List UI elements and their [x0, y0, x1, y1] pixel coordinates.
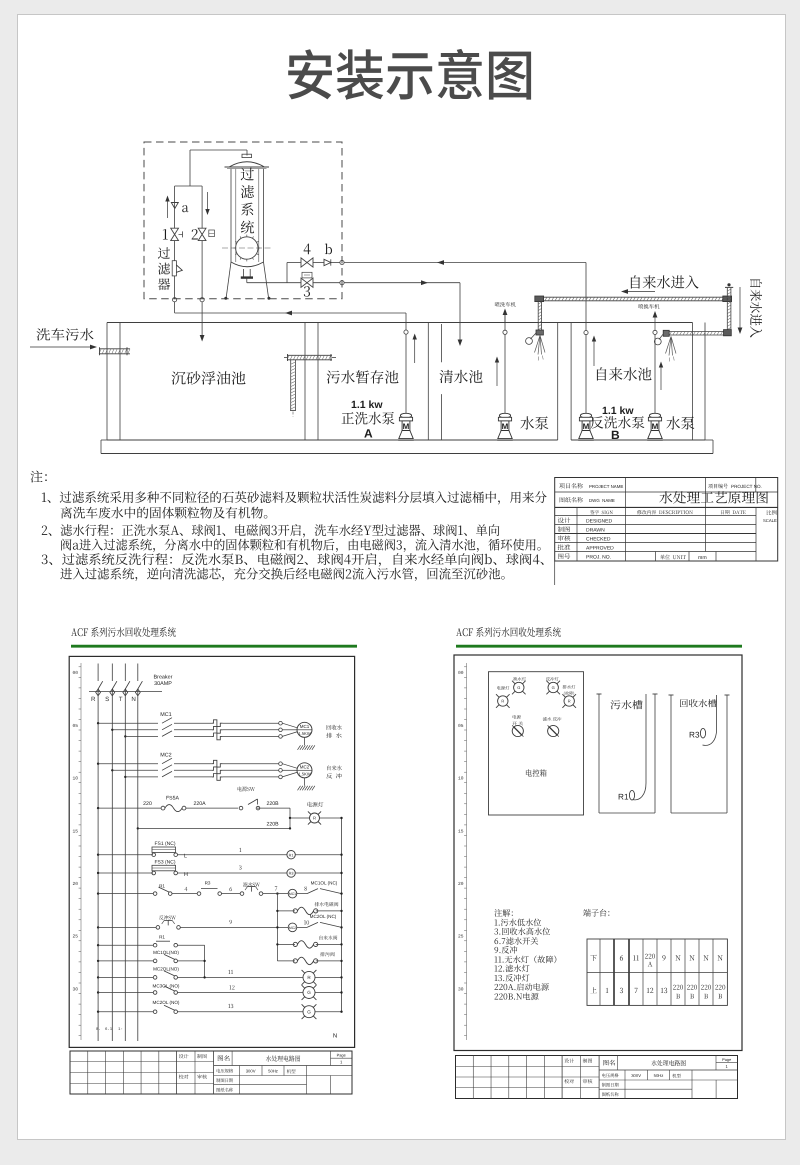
svg-text:H: H [184, 872, 188, 878]
svg-text:图纸名称: 图纸名称 [216, 1087, 233, 1093]
svg-text:污水槽: 污水槽 [610, 697, 643, 712]
svg-text:11: 11 [228, 968, 234, 976]
svg-text:R1: R1 [618, 793, 629, 802]
svg-text:M: M [652, 422, 659, 431]
svg-text:220: 220 [701, 983, 712, 992]
svg-text:4: 4 [303, 239, 311, 259]
svg-text:R: R [501, 698, 504, 703]
svg-text:沉砂浮油池: 沉砂浮油池 [171, 368, 246, 389]
svg-text:N: N [717, 954, 723, 964]
svg-text:b: b [324, 239, 332, 258]
svg-text:审核: 审核 [197, 1074, 207, 1081]
svg-text:220: 220 [715, 983, 726, 992]
svg-text:10: 10 [458, 776, 464, 782]
svg-text:审核: 审核 [583, 1078, 593, 1085]
svg-text:6: 6 [620, 954, 624, 964]
svg-text:自来水阀: 自来水阀 [319, 934, 338, 941]
svg-text:Page: Page [722, 1057, 731, 1062]
svg-text:300V: 300V [246, 1069, 256, 1074]
svg-text:进入过滤系统，逆向清洗滤芯，充分交换后经电磁阀2流入污水管，: 进入过滤系统，逆向清洗滤芯，充分交换后经电磁阀2流入污水管，回流至沉砂池。 [60, 564, 513, 583]
svg-text:MC2OL(NO): MC2OL(NO) [153, 966, 179, 971]
svg-text:20: 20 [458, 881, 464, 887]
svg-text:220B: 220B [266, 821, 279, 827]
svg-text:7: 7 [274, 885, 277, 893]
svg-text:SCALE: SCALE [763, 518, 777, 523]
svg-text:MC2: MC2 [160, 753, 171, 759]
svg-text:G: G [307, 1009, 311, 1014]
svg-text:T: T [119, 696, 123, 703]
svg-text:30: 30 [72, 986, 78, 992]
svg-text:B: B [676, 992, 680, 1001]
svg-text:00: 00 [458, 670, 464, 676]
svg-text:MC1: MC1 [160, 712, 171, 718]
svg-text:ACF 系列污水回收处理系统: ACF 系列污水回收处理系统 [71, 625, 176, 640]
svg-text:4: 4 [184, 885, 187, 893]
svg-text:R1: R1 [159, 935, 165, 940]
svg-text:1: 1 [239, 846, 242, 854]
svg-text:PROJECT NAME: PROJECT NAME [589, 484, 623, 489]
svg-text:N: N [703, 954, 709, 964]
svg-text:MC1: MC1 [289, 892, 296, 896]
svg-text:ACF 系列污水回收处理系统: ACF 系列污水回收处理系统 [456, 625, 561, 640]
svg-text:下: 下 [590, 954, 597, 964]
svg-text:机型: 机型 [672, 1073, 681, 1079]
svg-text:图纸名称: 图纸名称 [559, 495, 583, 504]
svg-text:设计: 设计 [179, 1053, 189, 1060]
svg-text:排 水: 排 水 [326, 731, 342, 739]
svg-text:30AMP: 30AMP [154, 681, 172, 687]
svg-text:M: M [403, 422, 410, 431]
svg-text:M: M [502, 422, 509, 431]
svg-text:自来水: 自来水 [326, 764, 342, 772]
svg-text:比例: 比例 [766, 510, 777, 517]
svg-text:L: L [184, 854, 187, 860]
svg-text:喷洗车机: 喷洗车机 [495, 301, 517, 309]
svg-text:水泵: 水泵 [520, 413, 549, 434]
svg-text:Breaker: Breaker [154, 675, 173, 681]
svg-text:B: B [690, 992, 694, 1001]
svg-text:1-: 1- [118, 1027, 123, 1032]
svg-text:11: 11 [633, 954, 640, 964]
svg-text:7: 7 [634, 986, 638, 996]
svg-text:R3: R3 [689, 731, 700, 740]
svg-text:B: B [718, 992, 722, 1001]
svg-text:电压规格: 电压规格 [216, 1069, 233, 1075]
svg-text:MC2: MC2 [289, 926, 296, 930]
svg-text:G: G [552, 685, 555, 690]
svg-text:DWG NAME: DWG NAME [589, 498, 615, 503]
svg-text:洗车污水: 洗车污水 [36, 324, 95, 344]
svg-text:30: 30 [458, 986, 464, 992]
svg-text:校对: 校对 [564, 1078, 574, 1085]
svg-text:G: G [517, 685, 520, 690]
svg-text:排水灯: 排水灯 [563, 685, 577, 691]
svg-text:MC2: MC2 [300, 765, 310, 770]
svg-text:喷换车机: 喷换车机 [638, 303, 660, 311]
svg-text:项目名称: 项目名称 [559, 481, 583, 490]
svg-text:9: 9 [229, 918, 232, 926]
svg-text:mm: mm [698, 555, 707, 561]
svg-text:MC2OL (NC): MC2OL (NC) [310, 914, 337, 919]
svg-text:上: 上 [590, 986, 597, 996]
svg-text:13: 13 [228, 1002, 234, 1010]
svg-text:FS3 (NC): FS3 (NC) [154, 860, 175, 866]
svg-text:220: 220 [673, 983, 684, 992]
svg-text:300V: 300V [631, 1073, 641, 1078]
svg-text:20: 20 [72, 881, 78, 887]
svg-text:电源SW: 电源SW [237, 785, 255, 793]
svg-text:25: 25 [72, 934, 78, 940]
svg-text:Page: Page [337, 1053, 346, 1058]
svg-text:污水暂存池: 污水暂存池 [326, 367, 399, 388]
svg-text:滤水 反冲: 滤水 反冲 [543, 717, 562, 723]
svg-text:6: 6 [229, 885, 232, 893]
svg-text:水处理电路图: 水处理电路图 [266, 1053, 301, 1063]
svg-text:注：: 注： [30, 467, 56, 486]
svg-text:设计: 设计 [558, 516, 571, 525]
svg-text:电压规格: 电压规格 [602, 1073, 619, 1079]
svg-text:签字 SIGN: 签字 SIGN [590, 510, 613, 516]
svg-text:图名: 图名 [217, 1054, 230, 1063]
svg-text:N: N [675, 954, 681, 964]
svg-text:2: 2 [191, 225, 199, 245]
svg-text:R: R [313, 816, 316, 821]
svg-text:220B.N电源: 220B.N电源 [494, 991, 540, 1002]
svg-text:制图日期: 制图日期 [602, 1083, 619, 1089]
svg-text:正洗水泵: 正洗水泵 [341, 409, 395, 429]
svg-text:自来水池: 自来水池 [594, 364, 652, 385]
svg-text:水泵: 水泵 [666, 413, 695, 434]
svg-text:水处理电路图: 水处理电路图 [651, 1057, 686, 1067]
svg-text:日期 DATE: 日期 DATE [720, 509, 746, 516]
svg-text:机型: 机型 [287, 1069, 296, 1075]
svg-text:220B: 220B [266, 801, 279, 807]
svg-text:排污阀: 排污阀 [320, 951, 335, 958]
svg-text:05: 05 [458, 723, 464, 729]
svg-text:统: 统 [240, 217, 255, 237]
svg-text:10: 10 [72, 776, 78, 782]
svg-text:1.5KW: 1.5KW [298, 731, 311, 736]
svg-text:图号: 图号 [558, 552, 571, 561]
svg-text:PROJ. NO.: PROJ. NO. [586, 555, 611, 561]
svg-text:00: 00 [72, 670, 78, 676]
svg-text:N: N [689, 954, 695, 964]
svg-text:批准: 批准 [558, 543, 571, 552]
svg-text:电源: 电源 [512, 715, 522, 721]
svg-text:图纸名称: 图纸名称 [602, 1092, 619, 1098]
svg-text:制图: 制图 [558, 525, 571, 534]
svg-text:反 冲: 反 冲 [326, 772, 342, 780]
svg-text:回收水槽: 回收水槽 [679, 697, 717, 710]
svg-text:R3: R3 [289, 872, 294, 876]
svg-text:审核: 审核 [558, 534, 572, 543]
svg-text:3: 3 [303, 282, 311, 302]
svg-text:M: M [583, 422, 590, 431]
svg-text:a: a [182, 197, 190, 216]
svg-text:清水池: 清水池 [439, 366, 483, 387]
svg-text:9: 9 [662, 954, 666, 964]
svg-text:220: 220 [143, 801, 152, 807]
svg-text:B: B [704, 992, 708, 1001]
svg-text:13: 13 [660, 986, 667, 996]
svg-text:FS1 (NC): FS1 (NC) [154, 841, 175, 847]
svg-text:修改内容 DESCRIPTION: 修改内容 DESCRIPTION [637, 509, 693, 516]
svg-text:自来水进入: 自来水进入 [747, 277, 766, 338]
svg-text:电源灯: 电源灯 [497, 686, 511, 692]
svg-text:G: G [307, 990, 311, 995]
svg-text:排水电磁阀: 排水电磁阀 [315, 901, 339, 908]
svg-text:校对: 校对 [179, 1074, 189, 1081]
svg-text:25: 25 [458, 934, 464, 940]
svg-text:S: S [105, 696, 109, 703]
svg-text:制图: 制图 [197, 1053, 207, 1060]
svg-text:220A: 220A [193, 801, 206, 807]
svg-text:R: R [568, 698, 571, 703]
svg-text:FS5A: FS5A [166, 796, 180, 802]
svg-text:回收水: 回收水 [326, 724, 342, 732]
svg-text:图名: 图名 [603, 1058, 616, 1067]
svg-text:电源灯: 电源灯 [307, 801, 324, 809]
svg-text:MC1: MC1 [300, 724, 310, 729]
svg-text:DESIGNED: DESIGNED [586, 519, 613, 525]
svg-text:器: 器 [157, 274, 170, 293]
svg-text:8: 8 [304, 885, 307, 893]
svg-text:1: 1 [162, 225, 169, 245]
svg-text:10: 10 [304, 918, 310, 926]
svg-text:15: 15 [72, 828, 78, 834]
svg-text:6.1: 6.1 [105, 1027, 113, 1032]
svg-text:单位 UNIT: 单位 UNIT [660, 554, 687, 561]
svg-text:50Hz: 50Hz [268, 1069, 278, 1074]
svg-text:端子台：: 端子台： [583, 907, 615, 919]
svg-text:MC1OL(NO): MC1OL(NO) [153, 950, 179, 955]
svg-text:15: 15 [458, 828, 464, 834]
svg-text:N: N [131, 696, 135, 703]
svg-text:MC2OL (NO): MC2OL (NO) [153, 1000, 180, 1005]
svg-text:DRAWN: DRAWN [586, 528, 605, 534]
svg-text:0.: 0. [96, 1027, 101, 1032]
svg-text:制图: 制图 [583, 1057, 593, 1064]
svg-text:50Hz: 50Hz [654, 1073, 664, 1078]
svg-text:N: N [333, 1033, 337, 1040]
svg-text:R1: R1 [289, 853, 294, 857]
svg-text:R: R [91, 696, 96, 703]
svg-text:220: 220 [687, 983, 698, 992]
svg-text:3: 3 [620, 986, 624, 996]
svg-text:离洗车废水中的固体颗粒物及有机物。: 离洗车废水中的固体颗粒物及有机物。 [60, 503, 276, 522]
svg-text:B: B [611, 428, 620, 442]
svg-text:水处理工艺原理图: 水处理工艺原理图 [659, 487, 769, 507]
svg-text:CHECKED: CHECKED [586, 537, 611, 543]
svg-text:R3: R3 [205, 881, 211, 886]
svg-text:3: 3 [239, 864, 242, 872]
svg-text:1.5KW: 1.5KW [298, 771, 311, 776]
svg-text:05: 05 [72, 723, 78, 729]
svg-text:12: 12 [229, 984, 235, 992]
svg-text:MC3OL (NO): MC3OL (NO) [153, 983, 180, 988]
svg-text:安装示意图: 安装示意图 [285, 32, 535, 111]
svg-text:MC1OL (NC): MC1OL (NC) [311, 881, 338, 886]
svg-text:A: A [364, 427, 373, 441]
svg-text:自来水进入: 自来水进入 [628, 272, 699, 293]
svg-text:1: 1 [605, 986, 608, 996]
svg-text:设计: 设计 [564, 1057, 574, 1064]
svg-text:APPROVED: APPROVED [586, 546, 614, 552]
svg-text:电控箱: 电控箱 [525, 768, 547, 779]
svg-text:制图日期: 制图日期 [216, 1078, 233, 1084]
svg-text:A: A [648, 960, 653, 969]
svg-text:12: 12 [646, 986, 653, 996]
